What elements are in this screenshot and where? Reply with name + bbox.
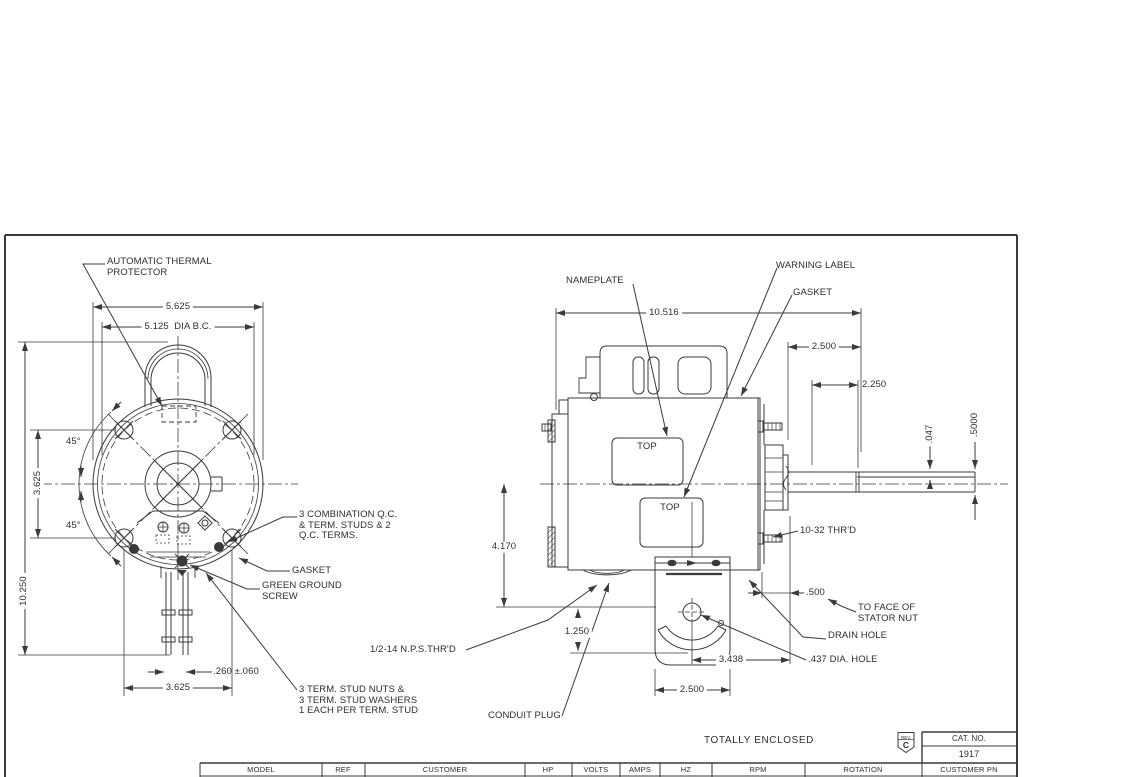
dim-center-height: 4.170 — [489, 542, 519, 553]
thermal-protector-box — [162, 406, 196, 422]
dim-angle-bottom: 45° — [66, 521, 81, 532]
conduit-plug-shape — [583, 570, 631, 575]
dim-angle-top: 45° — [66, 437, 81, 448]
col-volts: VOLTS — [583, 765, 608, 776]
ground-screw-label: GREEN GROUND SCREW — [262, 581, 342, 602]
dim-cover-width: 2.500 — [809, 342, 839, 353]
col-rotation: ROTATION — [843, 765, 882, 776]
front-view-dimensions — [18, 302, 263, 696]
motor-drawing-sheet: AUTOMATIC THERMAL PROTECTOR 5.625 5.125 … — [0, 0, 1142, 777]
top-upper-label: TOP — [637, 442, 657, 453]
col-hp: HP — [543, 765, 554, 776]
dim-shaft-flat: 2.250 — [862, 380, 886, 391]
dim-bolt-span-vertical: 3.625 — [33, 468, 44, 498]
col-model: MODEL — [247, 765, 275, 776]
gasket-front-label: GASKET — [292, 566, 331, 577]
dim-overall-length: 10.516 — [646, 308, 682, 319]
top-lower-label: TOP — [660, 503, 680, 514]
dim-nut-face: .500 — [806, 588, 825, 599]
thread-label: 10-32 THR'D — [800, 526, 856, 537]
cat-no-label: CAT. NO. — [952, 734, 986, 745]
side-view-drawing — [540, 346, 1008, 665]
front-view-drawing — [38, 336, 298, 655]
nps-thread-label: 1/2-14 N.P.S.THR'D — [370, 645, 456, 656]
qc-terms-label: 3 COMBINATION Q.C. & TERM. STUDS & 2 Q.C… — [299, 510, 397, 542]
dim-shaft-dia: .5000 — [970, 410, 981, 440]
dim-base-offset: 1.250 — [562, 627, 592, 638]
stud-nuts-label: 3 TERM. STUD NUTS & 3 TERM. STUD WASHERS… — [299, 685, 418, 717]
drawing-linework — [0, 0, 1142, 777]
dim-overall-height: 10.250 — [19, 573, 30, 609]
dim-width: 5.625 — [163, 302, 193, 313]
stator-nut — [765, 445, 783, 510]
dim-bolt-circle: 5.125 DIA B.C. — [142, 322, 215, 333]
gasket-side-label: GASKET — [793, 288, 832, 299]
drain-hole-label: DRAIN HOLE — [828, 631, 887, 642]
rev-value: C — [903, 740, 909, 751]
dim-stud-dia: .260 ±.060 — [213, 667, 259, 678]
nameplate-label: NAMEPLATE — [566, 276, 624, 287]
dim-hole-offset: 3.438 — [716, 655, 746, 666]
col-amps: AMPS — [629, 765, 651, 776]
col-rpm: RPM — [749, 765, 766, 776]
dim-flat-depth: .047 — [925, 422, 936, 447]
col-customer: CUSTOMER — [423, 765, 467, 776]
sheet-frame — [5, 235, 1017, 777]
col-ref: REF — [335, 765, 351, 776]
warning-label: WARNING LABEL — [776, 261, 855, 272]
conduit-plug-label: CONDUIT PLUG — [488, 711, 561, 722]
col-hz: HZ — [681, 765, 691, 776]
stator-face-label: TO FACE OF STATOR NUT — [858, 603, 918, 624]
col-customer-pn: CUSTOMER PN — [940, 765, 997, 776]
terminal-area — [130, 511, 224, 576]
dia-hole-label: .437 DIA. HOLE — [808, 655, 878, 666]
mounting-bracket — [655, 557, 730, 665]
dim-base-width: 2.500 — [677, 685, 707, 696]
cat-no-value: 1917 — [959, 749, 979, 760]
enclosure-note: TOTALLY ENCLOSED — [704, 736, 814, 747]
thermal-protector-label: AUTOMATIC THERMAL PROTECTOR — [107, 257, 212, 278]
dim-bolt-span-horizontal: 3.625 — [163, 683, 193, 694]
shaft — [784, 466, 976, 492]
